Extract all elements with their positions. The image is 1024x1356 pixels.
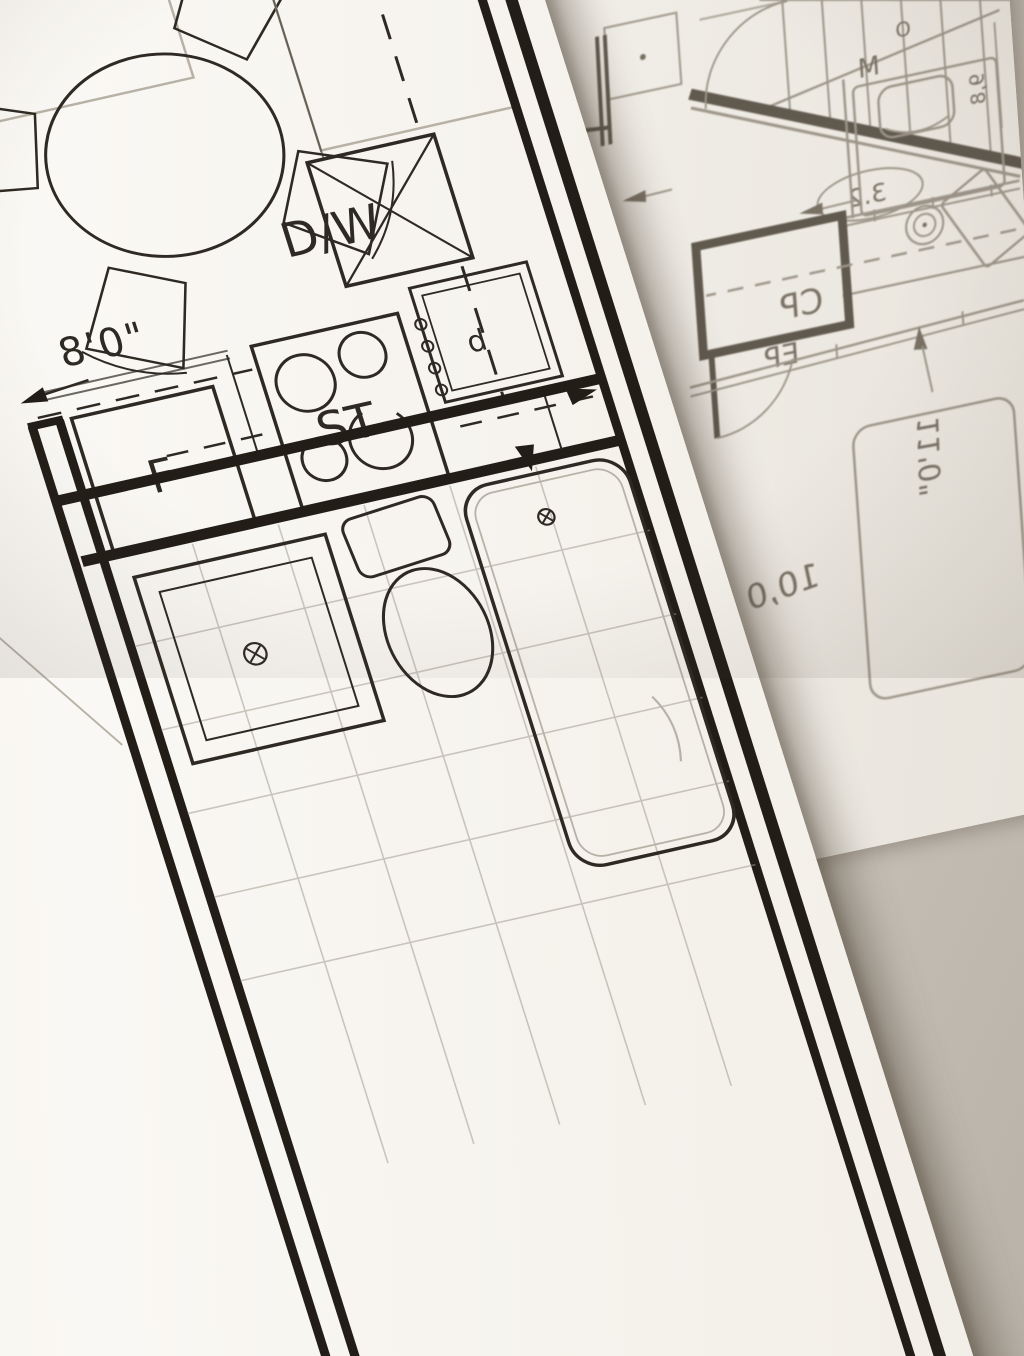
tile-grid — [109, 447, 819, 1183]
dimension-8ft: 8'0" — [2, 314, 159, 408]
bathtub-symbol — [458, 454, 742, 871]
arrow-icon — [17, 387, 48, 407]
dimension-extension-line — [0, 612, 122, 765]
chair-symbol — [0, 97, 38, 202]
arrow-icon — [622, 190, 646, 207]
counter-centerline-dashed — [317, 0, 421, 133]
bathroom — [109, 447, 819, 1183]
dimension-bottom-label: 10,0 — [743, 555, 823, 618]
room-label-m: M — [857, 51, 881, 86]
dimension-11ft: 11'0" — [903, 322, 952, 500]
pillow — [878, 73, 956, 139]
dishwasher-symbol: D/W — [260, 134, 473, 297]
room-label-o: O — [895, 17, 912, 43]
door-swing-arc-top — [700, 1, 794, 109]
svg-text:9,8: 9,8 — [965, 71, 990, 107]
svg-text:11'0": 11'0" — [912, 414, 949, 499]
drain-icon — [241, 641, 269, 667]
wall-segment — [59, 420, 420, 1356]
faint-plan-rectangle — [0, 0, 194, 128]
closet-rod-dashed-line — [706, 230, 1016, 296]
closet-label: CP — [779, 280, 825, 328]
table-top — [19, 31, 311, 279]
electrical-panel-label: EP — [763, 335, 800, 376]
shower-symbol — [134, 534, 384, 763]
svg-text:8'0": 8'0" — [53, 314, 153, 377]
cabinet-label: d — [462, 323, 491, 361]
burner — [333, 328, 392, 382]
